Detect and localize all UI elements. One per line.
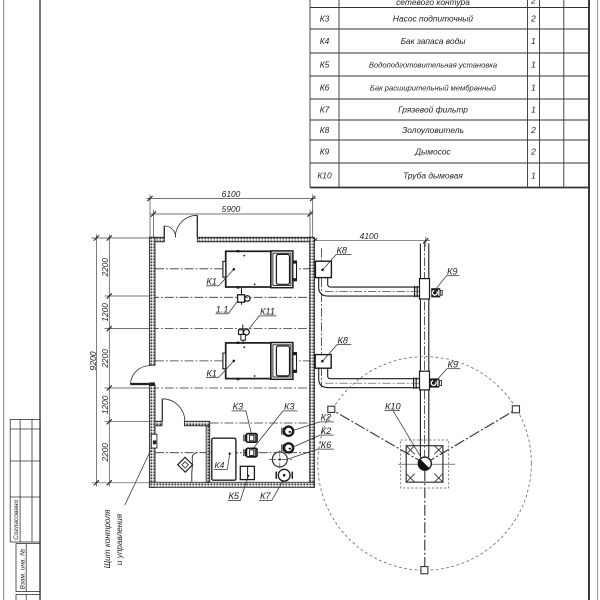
svg-text:К9: К9 (448, 360, 459, 370)
svg-text:К8: К8 (338, 335, 349, 345)
svg-text:и управления: и управления (115, 513, 124, 565)
svg-text:4100: 4100 (360, 231, 379, 241)
svg-text:К4: К4 (215, 460, 225, 470)
svg-text:5900: 5900 (222, 204, 241, 214)
svg-text:Грязевой фильтр: Грязевой фильтр (398, 105, 468, 115)
svg-text:К2: К2 (321, 426, 332, 436)
svg-text:Золоуловитель: Золоуловитель (402, 125, 464, 135)
svg-text:К5: К5 (320, 60, 330, 70)
svg-text:К6: К6 (320, 83, 330, 93)
svg-text:Щит контроля: Щит контроля (103, 509, 112, 568)
svg-text:К9: К9 (320, 147, 330, 157)
svg-text:К2: К2 (321, 413, 332, 423)
svg-text:К10: К10 (385, 402, 402, 412)
svg-text:6100: 6100 (222, 189, 241, 199)
svg-text:К3: К3 (320, 14, 330, 24)
svg-text:2: 2 (530, 147, 536, 157)
svg-text:2200: 2200 (100, 443, 110, 463)
svg-text:К7: К7 (260, 491, 271, 501)
svg-text:К4: К4 (320, 36, 330, 46)
svg-text:Взам. инв. №: Взам. инв. № (19, 549, 26, 590)
svg-text:К1: К1 (206, 277, 217, 287)
svg-text:К5: К5 (229, 491, 240, 501)
svg-text:К9: К9 (447, 267, 458, 277)
svg-text:К11: К11 (260, 307, 275, 317)
svg-text:сетевого контура: сетевого контура (396, 0, 470, 7)
svg-text:1.1: 1.1 (216, 305, 229, 315)
svg-text:Согласовано: Согласовано (13, 499, 20, 540)
svg-text:2: 2 (530, 0, 536, 6)
svg-text:Насос подпиточный: Насос подпиточный (393, 14, 473, 24)
svg-text:9200: 9200 (88, 351, 98, 370)
svg-text:'К6: 'К6 (319, 440, 332, 450)
svg-text:1: 1 (531, 105, 536, 115)
svg-text:2200: 2200 (100, 258, 110, 278)
svg-text:К7: К7 (320, 105, 330, 115)
svg-text:1200: 1200 (100, 303, 110, 322)
svg-text:2: 2 (530, 14, 536, 24)
svg-text:1: 1 (531, 60, 536, 70)
svg-text:1: 1 (531, 83, 536, 93)
svg-text:2200: 2200 (100, 349, 110, 369)
svg-text:К3: К3 (284, 402, 295, 412)
svg-text:Водоподготовительная установка: Водоподготовительная установка (369, 61, 497, 70)
svg-text:Бак расширительный мембранный: Бак расширительный мембранный (370, 84, 497, 93)
svg-text:1200: 1200 (100, 395, 110, 414)
svg-text:К1: К1 (206, 368, 217, 378)
svg-text:Бак запаса воды: Бак запаса воды (401, 36, 466, 46)
svg-text:1: 1 (531, 36, 536, 46)
svg-text:2: 2 (530, 125, 536, 135)
svg-text:К8: К8 (337, 245, 348, 255)
svg-text:К10: К10 (317, 170, 332, 180)
svg-text:Труба дымовая: Труба дымовая (403, 170, 463, 180)
svg-text:К3: К3 (233, 402, 244, 412)
svg-text:К8: К8 (320, 125, 330, 135)
svg-text:Дымосос: Дымосос (414, 147, 451, 157)
svg-text:1: 1 (531, 170, 536, 180)
